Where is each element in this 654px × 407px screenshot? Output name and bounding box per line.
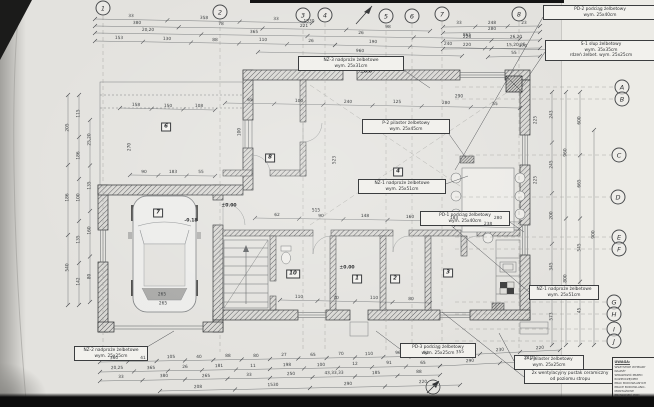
dimension-value: 65 (247, 98, 253, 103)
dimension-value: 960 (356, 48, 364, 53)
dimension-value: 105 (167, 355, 175, 360)
dimension-value: 25,20 (88, 134, 93, 146)
dimension-value: 33 (246, 373, 252, 378)
annotation-vent: 2x wentylacyjny pustak ceramicznyod pozi… (524, 369, 616, 384)
dimension-value: 135 (88, 181, 93, 189)
grid-bubble-D: D (611, 190, 626, 205)
room-number-2: 2 (390, 275, 400, 284)
annotation-s1: S-1 słup żelbetowywym. 35x35cmrdzeń żelb… (545, 40, 654, 61)
annotation-line: NZ-1 nadproże żelbetowe (532, 287, 596, 293)
dimension-value: 515 (312, 209, 320, 214)
dimension-value: 110 (295, 295, 303, 300)
dimension-value: 11 (250, 364, 256, 369)
grid-bubble-2: 2 (213, 5, 228, 20)
dimension-value: 55 (198, 170, 204, 175)
dimension-value: 198 (283, 363, 291, 368)
level-marker: -0.18 (184, 219, 197, 224)
dimension-value: 62 (274, 213, 280, 218)
dimension-value: 280 (494, 216, 502, 221)
dimension-value: 290 (343, 382, 351, 387)
dimension-value: 33 (128, 14, 134, 19)
grid-bubble-1: 1 (96, 1, 111, 16)
dimension-value: 26 (308, 39, 314, 44)
dimension-value: 90 (318, 213, 324, 218)
dimension-value: 110 (370, 296, 378, 301)
dimension-value: 245 (550, 161, 555, 169)
dimension-value: 200 (550, 211, 555, 219)
grid-bubble-C: C (612, 148, 627, 163)
dimension-value: 142 (77, 277, 82, 285)
dimension-value: 225 (534, 116, 539, 124)
dimension-value: 65 (420, 361, 426, 366)
dimension-value: 220 (418, 380, 426, 385)
dimension-value: 290 (455, 95, 463, 100)
dimension-value: 365 (250, 30, 258, 35)
dimension-value: 183 (168, 170, 176, 175)
annotation-nz1: NZ-1 nadproże żelbetowewym. 25x51cm (358, 179, 446, 194)
annotation-pd3: PD-3 podciąg żelbetowywym. 25x25cm (400, 343, 476, 358)
dimension-value: 43,33,33 (324, 371, 343, 376)
text-overlay: UWAGA: WSZYSTKIE WYMIARY NALEŻYSPRAWDZIĆ… (0, 0, 654, 407)
dimension-value: 80 (253, 354, 259, 359)
dimension-value: 88 (212, 37, 218, 42)
dimension-value: 190 (368, 40, 376, 45)
dimension-value: 51 (423, 351, 429, 356)
dimension-value: 208 (193, 385, 201, 390)
annotation-line: 2x wentylacyjny pustak ceramiczny (527, 371, 613, 377)
dimension-value: 248 (487, 21, 495, 26)
room-number-8: 8 (265, 154, 275, 163)
dimension-value: 90 (141, 170, 147, 175)
dimension-value: 91 (386, 361, 392, 366)
annotation-line: NZ-2 nadproże żelbetowe (77, 348, 145, 354)
dimension-value: 226 (463, 35, 471, 40)
left-edge-shading (0, 0, 26, 407)
scanned-floor-plan-page: UWAGA: WSZYSTKIE WYMIARY NALEŻYSPRAWDZIĆ… (0, 0, 654, 407)
annotation-p2: P-2 pilaster żelbetowywym. 25x45cm (362, 119, 450, 134)
dimension-value: 250 (287, 372, 295, 377)
dimension-value: 238 (483, 221, 491, 226)
dimension-value: 41 (140, 356, 146, 361)
dimension-value: 573 (550, 313, 555, 321)
grid-bubble-5: 5 (379, 9, 394, 24)
room-number-7: 7 (153, 209, 163, 218)
dimension-value: 88 (416, 370, 422, 375)
dimension-value: 265 (202, 374, 210, 379)
grid-bubble-4: 4 (318, 8, 333, 23)
dimension-value: 240 (443, 42, 451, 47)
dimension-value: 96 (395, 351, 401, 356)
grid-bubble-J: J (607, 334, 622, 349)
dimension-value: 23,25 (524, 356, 537, 362)
dimension-value: 15,20,25 (506, 43, 525, 48)
dimension-value: 98 (385, 25, 391, 30)
annotation-line: wym. 25x25cm (517, 363, 581, 369)
annotation-line: wym. 25x31cm (301, 64, 401, 70)
dimension-value: 115 (77, 109, 82, 117)
dimension-value: 186 (77, 151, 82, 159)
annotation-line: wym. 25x51cm (361, 187, 443, 193)
dimension-value: 110 (259, 38, 267, 43)
dimension-value: 33 (456, 21, 462, 26)
grid-bubble-6: 6 (405, 9, 420, 24)
dimension-value: 150 (163, 103, 171, 108)
dimension-value: 380 (133, 21, 141, 26)
annotation-line: wym. 25x40cm (546, 13, 654, 19)
dimension-value: 65 (310, 353, 316, 358)
dimension-value: 130 (163, 37, 171, 42)
dimension-value: 290 (466, 359, 474, 364)
scan-bottom-band (0, 397, 654, 407)
annotation-nz1b: NZ-1 nadproże żelbetowewym. 25x51cm (529, 285, 599, 300)
dimension-value: 186 (66, 193, 71, 201)
dimension-value: 100 (77, 193, 82, 201)
dimension-value: 265 (158, 293, 166, 298)
room-number-4: 4 (393, 168, 403, 177)
dimension-value: 960 (564, 148, 569, 156)
dimension-value: 135 (77, 235, 82, 243)
dimension-value: 205 (66, 123, 71, 131)
dimension-value: 55 (493, 102, 499, 107)
grid-bubble-7: 7 (435, 7, 450, 22)
scan-top-edge (250, 0, 564, 3)
grid-bubble-8: 8 (512, 7, 527, 22)
room-number-6: 6 (161, 123, 171, 132)
dimension-value: 540 (66, 263, 71, 271)
dimension-value: 665 (578, 180, 583, 188)
dimension-value: 20,20 (142, 28, 154, 33)
dimension-value: 280 (442, 101, 450, 106)
dimension-value: 110 (365, 352, 373, 357)
annotation-line: rdzeń żelbet. wym. 25x25cm (548, 53, 654, 59)
dimension-value: 225 (534, 176, 539, 184)
dimension-value: 240 (344, 100, 352, 105)
dimension-value: 45 (578, 308, 583, 313)
dimension-value: 181 (215, 364, 223, 369)
dimension-value: 545 (578, 243, 583, 251)
dimension-value: 100 (238, 128, 243, 136)
dimension-value: 600 (578, 117, 583, 125)
dimension-value: 1530 (304, 20, 315, 25)
dimension-value: 345 (550, 262, 555, 270)
dimension-value: 380 (160, 374, 168, 379)
annotation-line: wym. 25x45cm (365, 127, 447, 133)
dimension-value: 70 (333, 296, 339, 301)
annotation-line: od poziomu stropu (527, 377, 613, 383)
dimension-value: 26 (182, 365, 188, 370)
grid-bubble-H: H (607, 307, 622, 322)
dimension-value: 80 (88, 274, 93, 279)
dimension-value: 100 (317, 363, 325, 368)
room-number-3: 3 (443, 269, 453, 278)
dimension-value: 26 (358, 31, 364, 36)
level-marker: ±0.00 (221, 204, 236, 209)
page-corner-shadow (0, 0, 32, 60)
dimension-value: 183 (450, 215, 458, 220)
dimension-value: 900 (592, 230, 597, 238)
dimension-value: 27 (281, 353, 287, 358)
dimension-value: 78 (218, 22, 224, 27)
grid-bubble-B: B (615, 92, 630, 107)
dimension-value: 70 (338, 352, 344, 357)
dimension-value: 280 (487, 27, 495, 32)
dimension-value: 270 (128, 143, 133, 151)
room-number-10: 10 (286, 270, 300, 279)
dimension-value: 12 (352, 362, 358, 367)
annotation-pd2: PD-2 podciąg żelbetowywym. 25x40cm (543, 5, 654, 20)
dimension-value: 26,20 (510, 35, 522, 40)
dimension-value: 243 (550, 110, 555, 118)
dimension-value: 148 (361, 214, 369, 219)
room-number-1: 1 (352, 275, 362, 284)
annotation-nz3: NZ-3 nadproże żelbetowewym. 25x31cm (298, 56, 404, 71)
dimension-value: 158 (132, 103, 140, 108)
dimension-value: 220 (463, 43, 471, 48)
dimension-value: 80 (408, 297, 414, 302)
dimension-value: 360 (110, 356, 118, 361)
annotation-line: wym. 25x51cm (532, 293, 596, 299)
dimension-value: 33 (118, 375, 124, 380)
dimension-value: 153 (115, 36, 123, 41)
dimension-value: 88 (225, 354, 231, 359)
dimension-value: 20,25 (111, 366, 123, 371)
dimension-value: 358 (199, 15, 207, 20)
dimension-value: 1530 (267, 383, 278, 388)
dimension-value: 160 (405, 215, 413, 220)
dimension-value: 800 (564, 275, 569, 283)
dimension-value: 100 (295, 99, 303, 104)
dimension-value: 40 (196, 355, 202, 360)
dimension-value: 230 (496, 347, 504, 352)
dimension-value: 265 (159, 302, 167, 307)
dimension-value: 108 (195, 104, 203, 109)
dimension-value: 33 (273, 17, 279, 22)
dimension-value: 185 (372, 371, 380, 376)
dimension-value: 160 (88, 227, 93, 235)
dimension-value: 23 (521, 21, 527, 26)
dimension-value: 125 (393, 100, 401, 105)
dimension-value: 365 (147, 366, 155, 371)
grid-bubble-F: F (612, 242, 627, 257)
dimension-value: 523 (333, 156, 338, 164)
bottom-left-shadow (0, 363, 46, 397)
dimension-value: 220 (536, 345, 544, 350)
dimension-value: 55 (511, 51, 517, 56)
dimension-value: 355 (456, 349, 464, 354)
level-marker: ±0.00 (339, 266, 354, 271)
